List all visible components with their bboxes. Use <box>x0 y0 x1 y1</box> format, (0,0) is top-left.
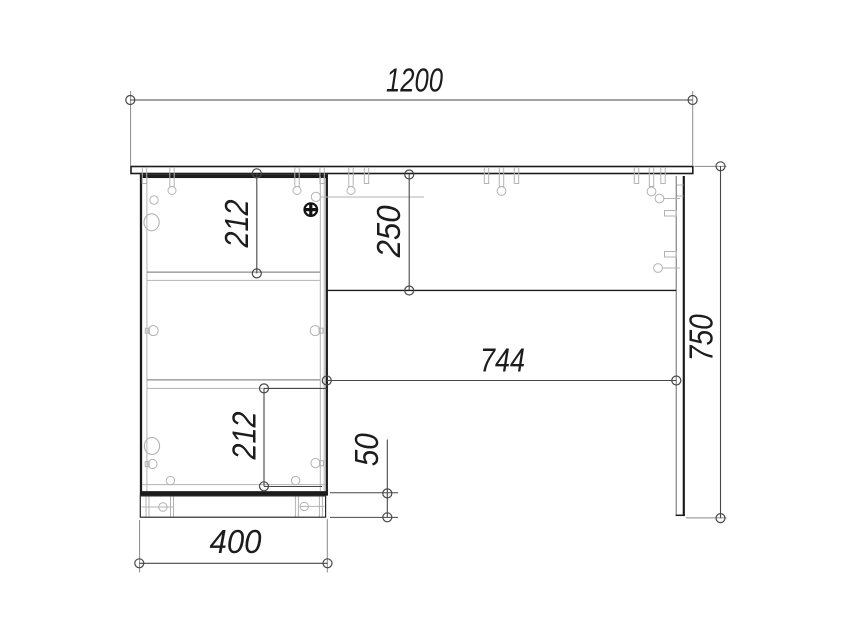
svg-text:50: 50 <box>348 433 385 467</box>
svg-text:400: 400 <box>210 523 263 560</box>
svg-text:212: 212 <box>218 200 255 249</box>
svg-text:212: 212 <box>226 412 263 461</box>
svg-text:250: 250 <box>370 205 407 259</box>
svg-text:750: 750 <box>682 314 719 362</box>
svg-text:1200: 1200 <box>386 61 443 98</box>
svg-text:744: 744 <box>480 341 525 378</box>
